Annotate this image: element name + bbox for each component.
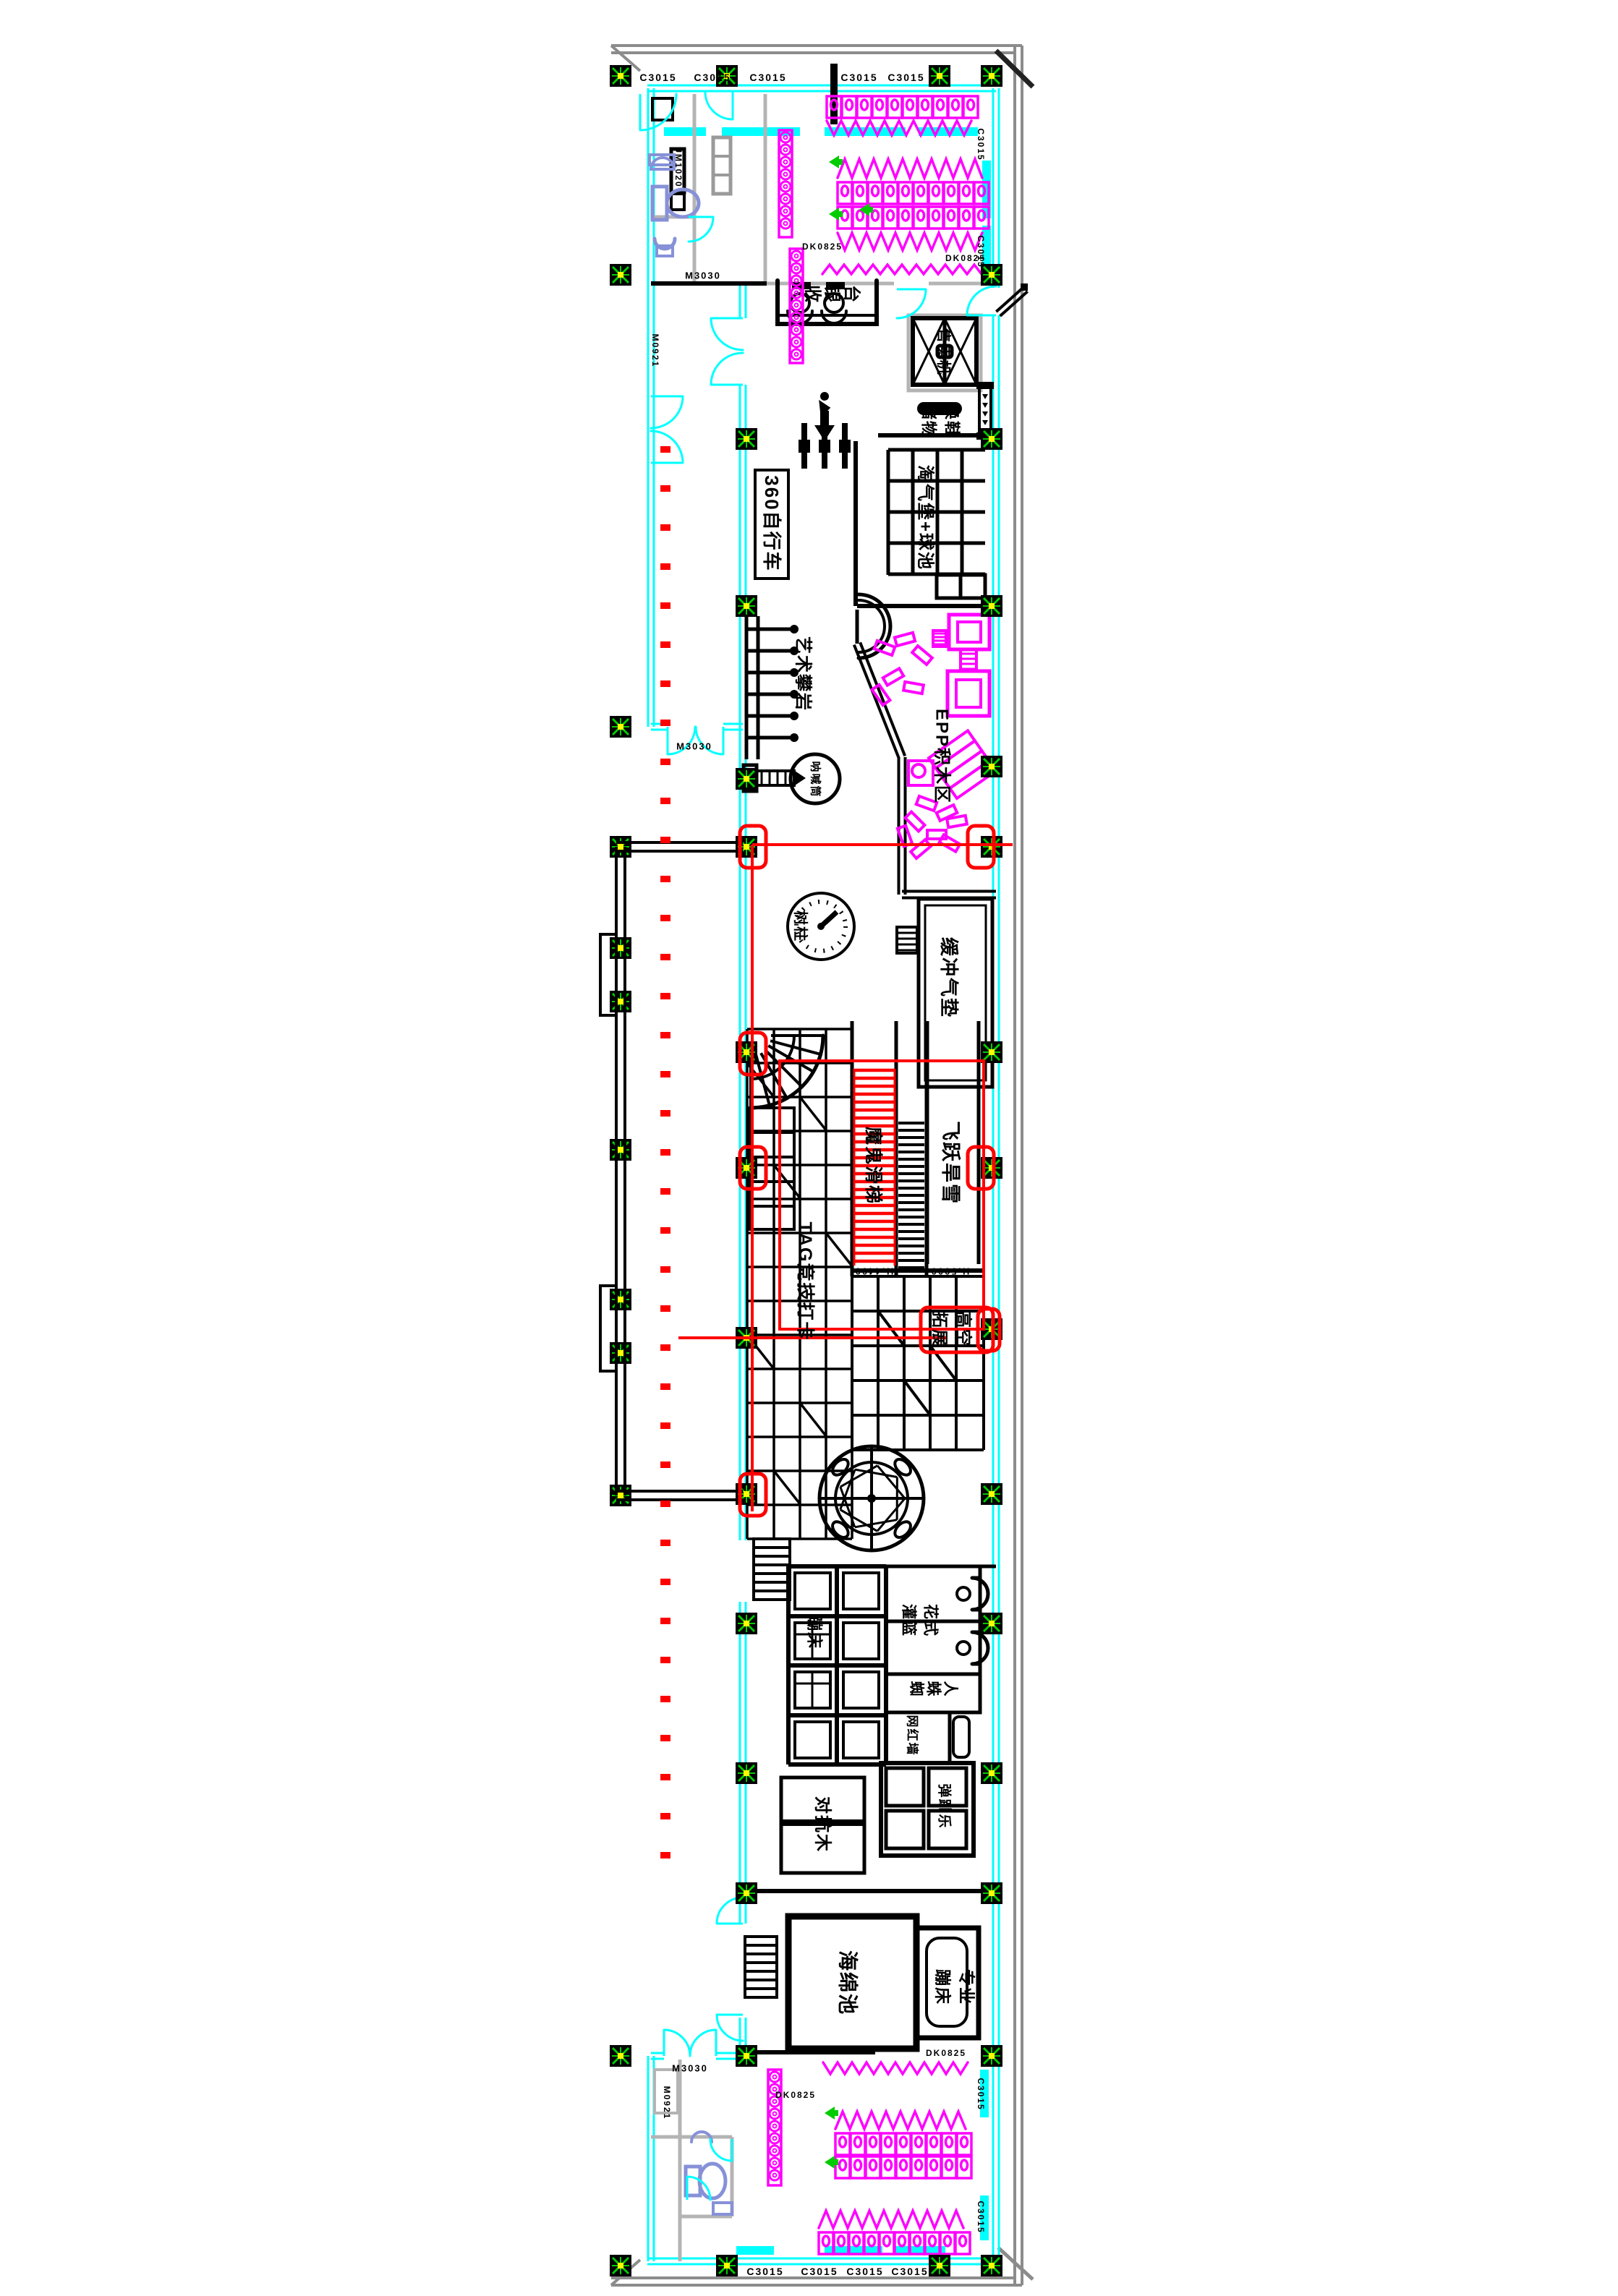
label-epp-blocks: EPP积木区 [932,709,952,804]
label-trampoline: 蹦床 [806,1615,824,1650]
label-dry-ski: 飞跃旱雪 [940,1121,961,1205]
svg-text:M0921: M0921 [662,2086,672,2120]
label-devil-slide: 魔鬼滑梯 [863,1127,884,1205]
svg-text:台: 台 [841,285,861,304]
svg-text:C3015: C3015 [891,2266,928,2277]
svg-text:C3015: C3015 [976,128,986,161]
label-fancy-dunk: 花式 [922,1604,940,1637]
svg-text:C3015: C3015 [694,72,731,83]
label-bounce-area: 弹跳乐 [937,1783,953,1829]
label-pro-trampoline: 蹦床 [933,1969,952,2005]
label-photo-wall: 网红墙 [906,1715,920,1757]
label-high-ropes: 拓展 [930,1311,949,1347]
svg-text:C3015: C3015 [846,2266,883,2277]
svg-text:人: 人 [942,1681,958,1698]
svg-text:DK0825: DK0825 [945,253,986,263]
svg-text:DK0825: DK0825 [802,242,843,252]
svg-text:DK0825: DK0825 [926,2048,966,2058]
svg-text:C3015: C3015 [887,72,924,83]
label-ski-height: H:5000 [930,1266,970,1277]
svg-text:C3015: C3015 [976,2201,986,2233]
drawing-canvas: 收银台售卖机换鞋储物360自行车淘气堡+球池艺术攀岩EPP积木区呐喊筒树柱缓冲气… [0,0,1618,2296]
label-naughty-castle: 淘气堡+球池 [916,465,936,571]
equipment-black [652,64,1028,2049]
label-slide-height: H:4400 [854,1266,894,1277]
svg-text:M3030: M3030 [672,2063,708,2074]
label-joust-beam: 对抗木 [813,1796,833,1853]
svg-text:C3015: C3015 [639,72,676,83]
label-art-climbing: 艺术攀岩 [793,636,813,712]
floor-plan-svg: 收银台售卖机换鞋储物360自行车淘气堡+球池艺术攀岩EPP积木区呐喊筒树柱缓冲气… [0,0,1618,2296]
label-bike-360: 360自行车 [761,475,783,571]
label-buffer-cushion: 缓冲气垫 [938,937,960,1018]
label-scream-tube: 呐喊筒 [809,761,822,798]
svg-text:JM1020: JM1020 [673,148,684,187]
label-tag-arena: TAG竞技打卡 [795,1222,816,1341]
svg-text:M3030: M3030 [685,270,721,281]
svg-text:C3015: C3015 [746,2266,783,2277]
svg-text:C3015: C3015 [976,2078,986,2110]
label-shoe-storage: 换鞋 [942,404,961,438]
label-tree-column: 树柱 [792,910,809,942]
label-high-ropes: 高空 [955,1311,974,1347]
svg-text:银: 银 [822,285,843,304]
svg-text:C3015: C3015 [840,72,877,83]
label-vending-machine: 售卖机 [935,328,953,376]
label-sponge-pool: 海绵池 [837,1950,859,2015]
label-cashier: 收 [803,285,822,304]
label-spiderman-wall: 蜘 [908,1681,925,1698]
label-shoe-storage: 储物 [920,404,938,438]
label-pro-trampoline: 专业 [958,1969,976,2005]
svg-text:C3015: C3015 [801,2266,838,2277]
svg-text:C3015: C3015 [749,72,786,83]
label-fancy-dunk: 灌篮 [900,1604,917,1637]
svg-text:蛛: 蛛 [925,1681,942,1698]
svg-text:M3030: M3030 [676,741,712,752]
svg-text:DK0825: DK0825 [775,2090,816,2100]
svg-text:M0921: M0921 [650,334,660,368]
